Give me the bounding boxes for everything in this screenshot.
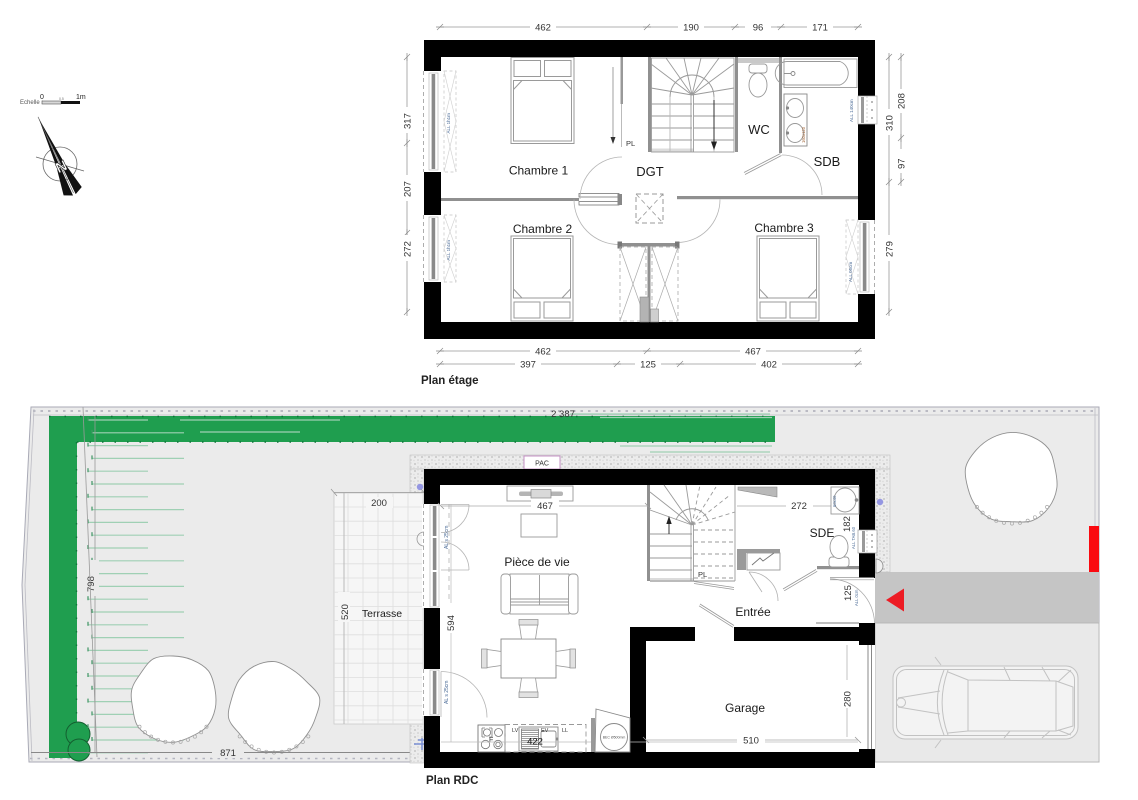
svg-text:Plan étage: Plan étage bbox=[421, 375, 479, 387]
svg-text:467: 467 bbox=[537, 501, 553, 512]
svg-text:402: 402 bbox=[761, 360, 777, 371]
svg-text:AL s 25cm: AL s 25cm bbox=[444, 681, 450, 704]
svg-text:279: 279 bbox=[885, 241, 896, 257]
svg-text:125: 125 bbox=[640, 360, 656, 371]
svg-text:Pièce de vie: Pièce de vie bbox=[504, 555, 570, 569]
svg-text:Entrée: Entrée bbox=[735, 605, 771, 619]
svg-text:AL s 25cm: AL s 25cm bbox=[444, 526, 450, 549]
svg-text:2 387: 2 387 bbox=[551, 409, 575, 420]
svg-text:280: 280 bbox=[843, 691, 854, 707]
svg-text:96: 96 bbox=[753, 23, 764, 34]
svg-text:Plan RDC: Plan RDC bbox=[426, 775, 478, 787]
svg-text:LV: LV bbox=[512, 728, 519, 734]
svg-text:Garage: Garage bbox=[725, 701, 765, 715]
svg-text:PL: PL bbox=[698, 570, 707, 579]
svg-text:310: 310 bbox=[885, 115, 896, 131]
svg-text:798: 798 bbox=[86, 576, 97, 592]
svg-text:871: 871 bbox=[220, 748, 236, 759]
svg-text:ALL 05cm: ALL 05cm bbox=[848, 262, 853, 282]
svg-text:PAC: PAC bbox=[535, 461, 549, 468]
svg-text:Chambre 1: Chambre 1 bbox=[509, 164, 569, 178]
svg-text:PL: PL bbox=[626, 139, 635, 148]
svg-text:SDE: SDE bbox=[810, 526, 835, 540]
svg-text:Chambre 2: Chambre 2 bbox=[513, 222, 573, 236]
svg-text:Chambre 3: Chambre 3 bbox=[754, 221, 814, 235]
svg-text:ALL 1h1m: ALL 1h1m bbox=[446, 113, 451, 134]
svg-text:208: 208 bbox=[897, 93, 908, 109]
svg-text:422: 422 bbox=[527, 737, 543, 748]
svg-text:171: 171 bbox=[812, 23, 828, 34]
svg-text:EV: EV bbox=[541, 728, 549, 734]
svg-text:397: 397 bbox=[520, 360, 536, 371]
svg-text:LL: LL bbox=[562, 728, 568, 734]
svg-text:Terrasse: Terrasse bbox=[362, 608, 402, 620]
svg-text:462: 462 bbox=[535, 23, 551, 34]
svg-text:BEC Ø500mm: BEC Ø500mm bbox=[603, 736, 626, 740]
svg-text:190: 190 bbox=[683, 23, 699, 34]
svg-text:DGT: DGT bbox=[636, 164, 664, 179]
svg-text:SDB: SDB bbox=[814, 154, 841, 169]
svg-text:F: F bbox=[489, 737, 493, 744]
svg-text:0: 0 bbox=[40, 94, 44, 101]
svg-text:272: 272 bbox=[403, 241, 414, 257]
svg-text:0.5: 0.5 bbox=[59, 97, 64, 101]
svg-text:ALL 140cm: ALL 140cm bbox=[849, 99, 854, 122]
svg-text:207: 207 bbox=[403, 181, 414, 197]
svg-text:60x40: 60x40 bbox=[832, 495, 837, 507]
svg-text:182: 182 bbox=[842, 516, 853, 532]
svg-text:594: 594 bbox=[446, 615, 457, 631]
svg-text:520: 520 bbox=[340, 604, 351, 620]
svg-text:ALL 1h1m: ALL 1h1m bbox=[446, 240, 451, 261]
svg-text:160x120: 160x120 bbox=[801, 126, 806, 143]
svg-text:467: 467 bbox=[745, 347, 761, 358]
svg-text:97: 97 bbox=[897, 158, 908, 169]
svg-text:317: 317 bbox=[403, 113, 414, 129]
svg-text:200: 200 bbox=[371, 498, 387, 509]
svg-text:ALL 0cm: ALL 0cm bbox=[854, 589, 859, 606]
svg-text:510: 510 bbox=[743, 736, 759, 747]
svg-text:WC: WC bbox=[748, 122, 770, 137]
svg-text:272: 272 bbox=[791, 501, 807, 512]
svg-text:462: 462 bbox=[535, 347, 551, 358]
svg-text:1m: 1m bbox=[76, 94, 86, 101]
svg-text:125: 125 bbox=[843, 585, 854, 601]
